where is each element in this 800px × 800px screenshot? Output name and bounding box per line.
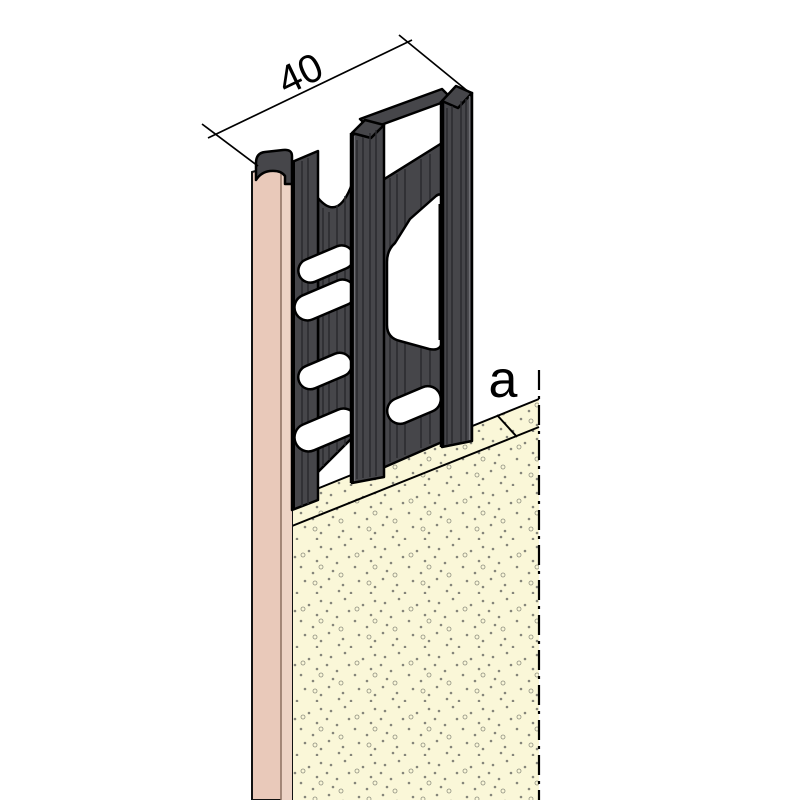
dimension-value: 40: [271, 45, 330, 104]
middle-rib: [352, 120, 384, 483]
plaster-thickness-label: a: [489, 351, 518, 409]
technical-drawing-page: 40 a: [0, 0, 800, 800]
substrate-board: [252, 161, 292, 800]
board-side-sliver: [281, 161, 292, 800]
witness-line-left: [202, 124, 258, 166]
witness-line-right: [399, 35, 470, 93]
profile-flange: [292, 151, 318, 510]
profile-diagram: 40 a: [0, 0, 800, 800]
back-rib: [442, 86, 472, 447]
